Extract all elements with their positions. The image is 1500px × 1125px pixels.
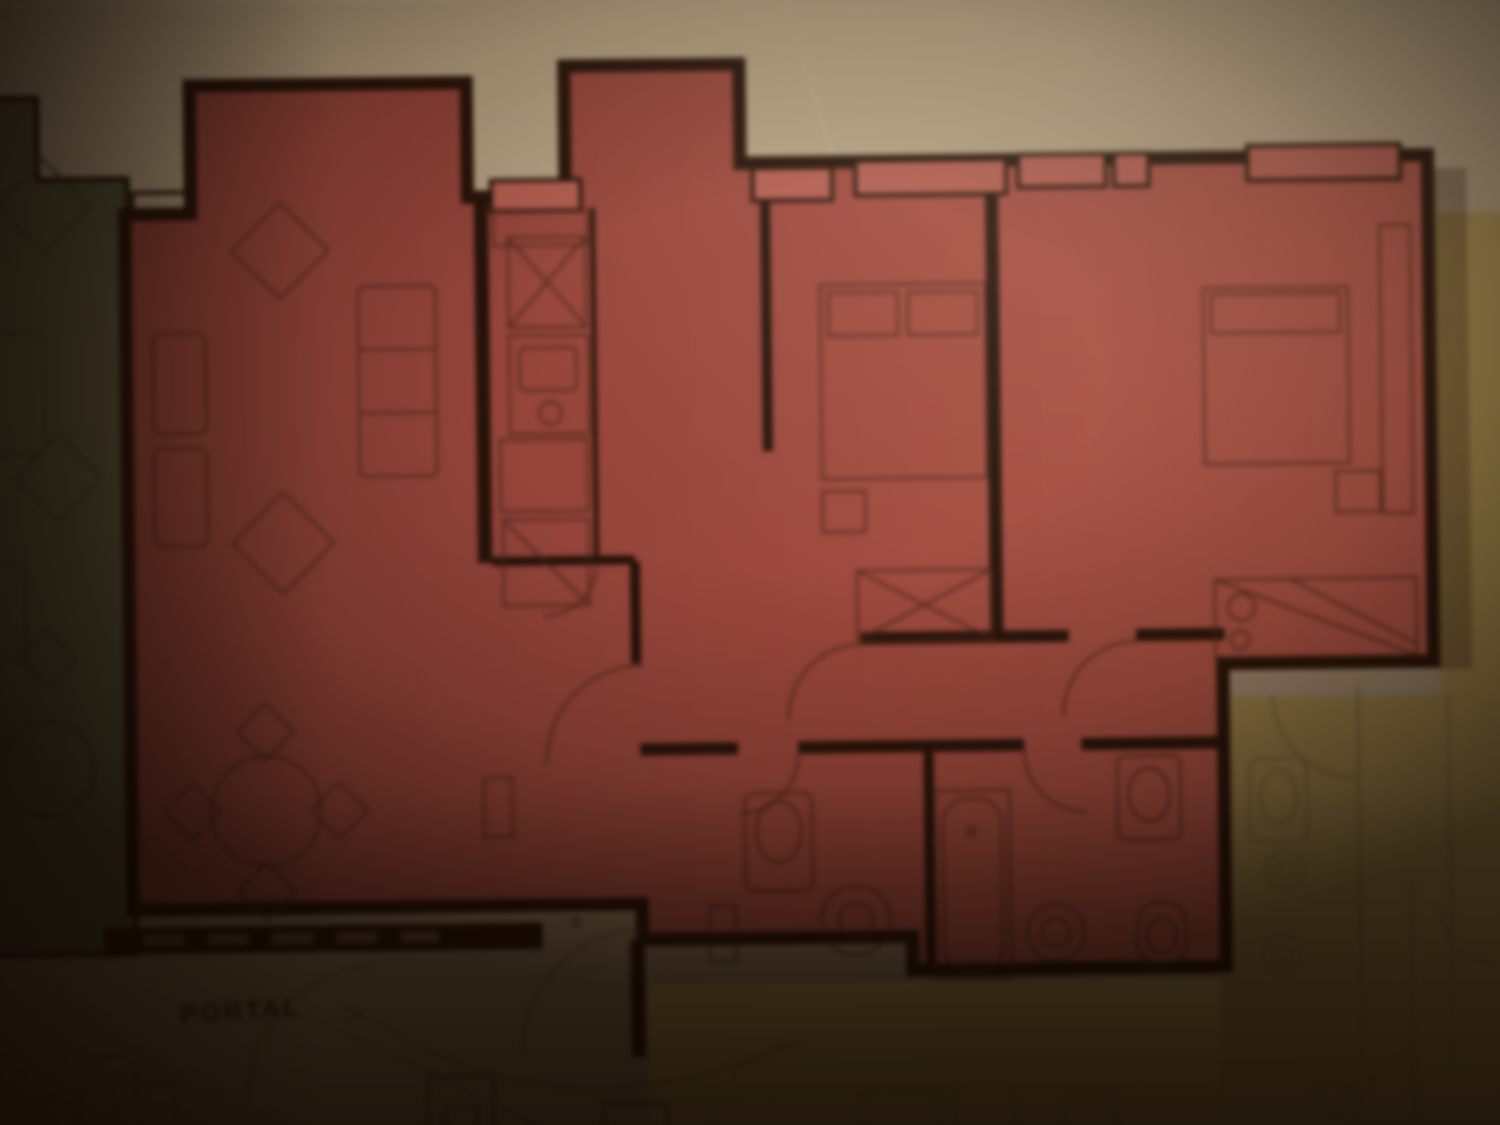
stair-slit bbox=[143, 934, 184, 946]
floorplan-svg: PORTAL bbox=[0, 0, 1500, 1125]
green-unit bbox=[0, 97, 137, 956]
plan-layer: PORTAL bbox=[0, 0, 1500, 1125]
stair-slit bbox=[208, 933, 249, 945]
sofa-cushion-line bbox=[358, 349, 435, 350]
window bbox=[491, 179, 581, 211]
window bbox=[752, 167, 832, 201]
wall-hall-stub-h bbox=[492, 555, 635, 566]
wall-hall-stub-v bbox=[630, 561, 641, 663]
window bbox=[1018, 154, 1106, 188]
sofa-cushion-line bbox=[359, 412, 436, 413]
wall-portal-right bbox=[630, 940, 646, 1058]
wall-bath-top-c bbox=[1081, 736, 1224, 750]
window bbox=[1247, 144, 1400, 181]
stair-slit bbox=[400, 931, 439, 943]
floorplan-photo: PORTAL bbox=[0, 0, 1500, 1125]
window bbox=[1114, 153, 1149, 186]
stair-slit bbox=[272, 933, 313, 945]
wall-bed2-bottom-b bbox=[1136, 628, 1225, 641]
wall-shadow-right bbox=[1432, 168, 1473, 670]
wall-bath-top-a bbox=[640, 742, 738, 755]
wall-bed2-bottom-a bbox=[1003, 630, 1068, 643]
window bbox=[855, 159, 1006, 196]
stair-slit bbox=[336, 932, 377, 944]
yellow-unit-bottom bbox=[648, 979, 1221, 1125]
wall-bed1-bottom bbox=[861, 631, 996, 645]
